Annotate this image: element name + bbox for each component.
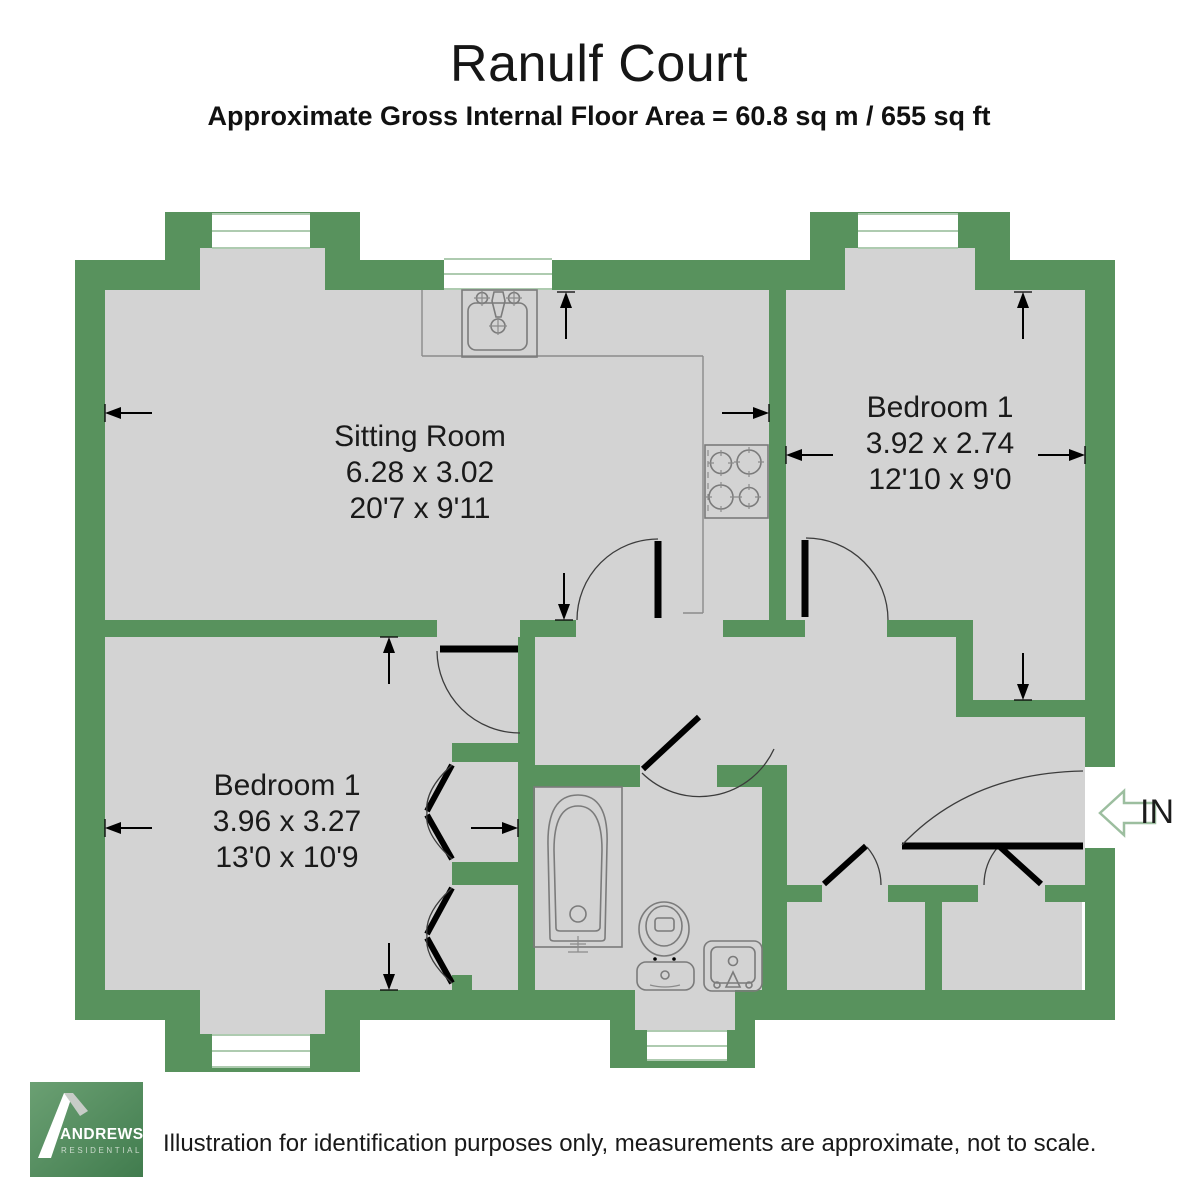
room-dims-imperial: 20'7 x 9'11 [250, 491, 590, 527]
room-dims-imperial: 12'10 x 9'0 [770, 462, 1110, 498]
logo-subname: RESIDENTIAL [61, 1146, 142, 1155]
room-dims-metric: 3.96 x 3.27 [117, 804, 457, 840]
floor-bathroom [535, 765, 762, 990]
room-name: Bedroom 1 [770, 390, 1110, 426]
logo-name: ANDREWS [60, 1126, 143, 1143]
disclaimer-text: Illustration for identification purposes… [163, 1130, 1096, 1158]
floor-wardrobe-2 [452, 885, 518, 990]
room-name: Bedroom 1 [117, 768, 457, 804]
room-label-bedroom1-left: Bedroom 1 3.96 x 3.27 13'0 x 10'9 [117, 768, 457, 876]
room-label-bedroom1-right: Bedroom 1 3.92 x 2.74 12'10 x 9'0 [770, 390, 1110, 498]
window-bathroom [647, 1030, 727, 1061]
room-dims-metric: 3.92 x 2.74 [770, 426, 1110, 462]
page-title: Ranulf Court [0, 34, 1198, 94]
floor-area-subtitle: Approximate Gross Internal Floor Area = … [0, 101, 1198, 132]
window-top-right [858, 213, 958, 249]
floorplan-svg [0, 0, 1198, 1200]
window-bottom-left [212, 1034, 310, 1068]
room-dims-imperial: 13'0 x 10'9 [117, 840, 457, 876]
window-kitchen [444, 258, 552, 290]
room-dims-metric: 6.28 x 3.02 [250, 455, 590, 491]
room-name: Sitting Room [250, 419, 590, 455]
entrance-label: IN [1140, 793, 1174, 832]
agency-logo: ANDREWS RESIDENTIAL [30, 1082, 143, 1182]
window-top-left [212, 213, 310, 249]
floor-wardrobe-1 [452, 762, 518, 862]
room-label-sitting-room: Sitting Room 6.28 x 3.02 20'7 x 9'11 [250, 419, 590, 527]
